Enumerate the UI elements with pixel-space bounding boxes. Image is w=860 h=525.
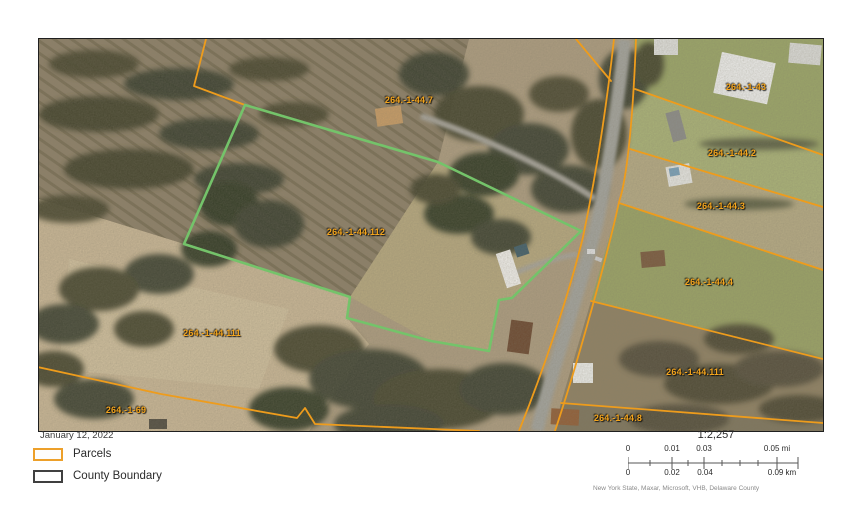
county-boundary-swatch-icon	[33, 470, 63, 483]
km-tick-label: 0	[626, 468, 630, 477]
km-tick-label: 0.02	[664, 468, 680, 477]
parcel-label: 264.-1-44.112	[327, 227, 385, 237]
parcel-label: 264.-1-44.8	[594, 413, 642, 423]
map-export-page: 264.-1-44.7 264.-1-43 264.-1-44.2 264.-1…	[0, 0, 860, 525]
parcel-label: 264.-1-44.2	[708, 148, 756, 158]
mi-tick-label: 0	[626, 444, 630, 453]
mi-tick-label: 0.03	[696, 444, 712, 453]
km-tick-label: 0.09 km	[768, 468, 796, 477]
km-tick-label: 0.04	[697, 468, 713, 477]
parcels-swatch-icon	[33, 448, 63, 461]
legend-item-county-boundary: County Boundary	[73, 470, 162, 482]
parcel-label: 264.-1-44.4	[685, 277, 733, 287]
map-viewport[interactable]: 264.-1-44.7 264.-1-43 264.-1-44.2 264.-1…	[38, 38, 824, 432]
legend: January 12, 2022 Parcels County Boundary	[33, 428, 263, 498]
legend-item-parcels: Parcels	[73, 448, 111, 460]
parcel-label: 264.-1-44.3	[697, 201, 745, 211]
map-date: January 12, 2022	[40, 430, 113, 441]
mi-tick-label: 0.01	[664, 444, 680, 453]
parcel-label: 264.-1-43	[726, 82, 766, 92]
scale-ratio: 1:2,257	[656, 429, 776, 441]
parcel-label: 264.-1-69	[106, 405, 146, 415]
parcel-label: 264.-1-44.111	[183, 328, 241, 338]
mi-tick-label: 0.05 mi	[764, 444, 790, 453]
attribution-text: New York State, Maxar, Microsoft, VHB, D…	[593, 485, 759, 492]
scalebar: 1:2,257 0 0.01 0.03 0.05 mi 0	[590, 429, 840, 495]
parcel-label: 264.-1-44.7	[385, 95, 433, 105]
parcel-label: 264.-1-44.111	[666, 367, 724, 377]
